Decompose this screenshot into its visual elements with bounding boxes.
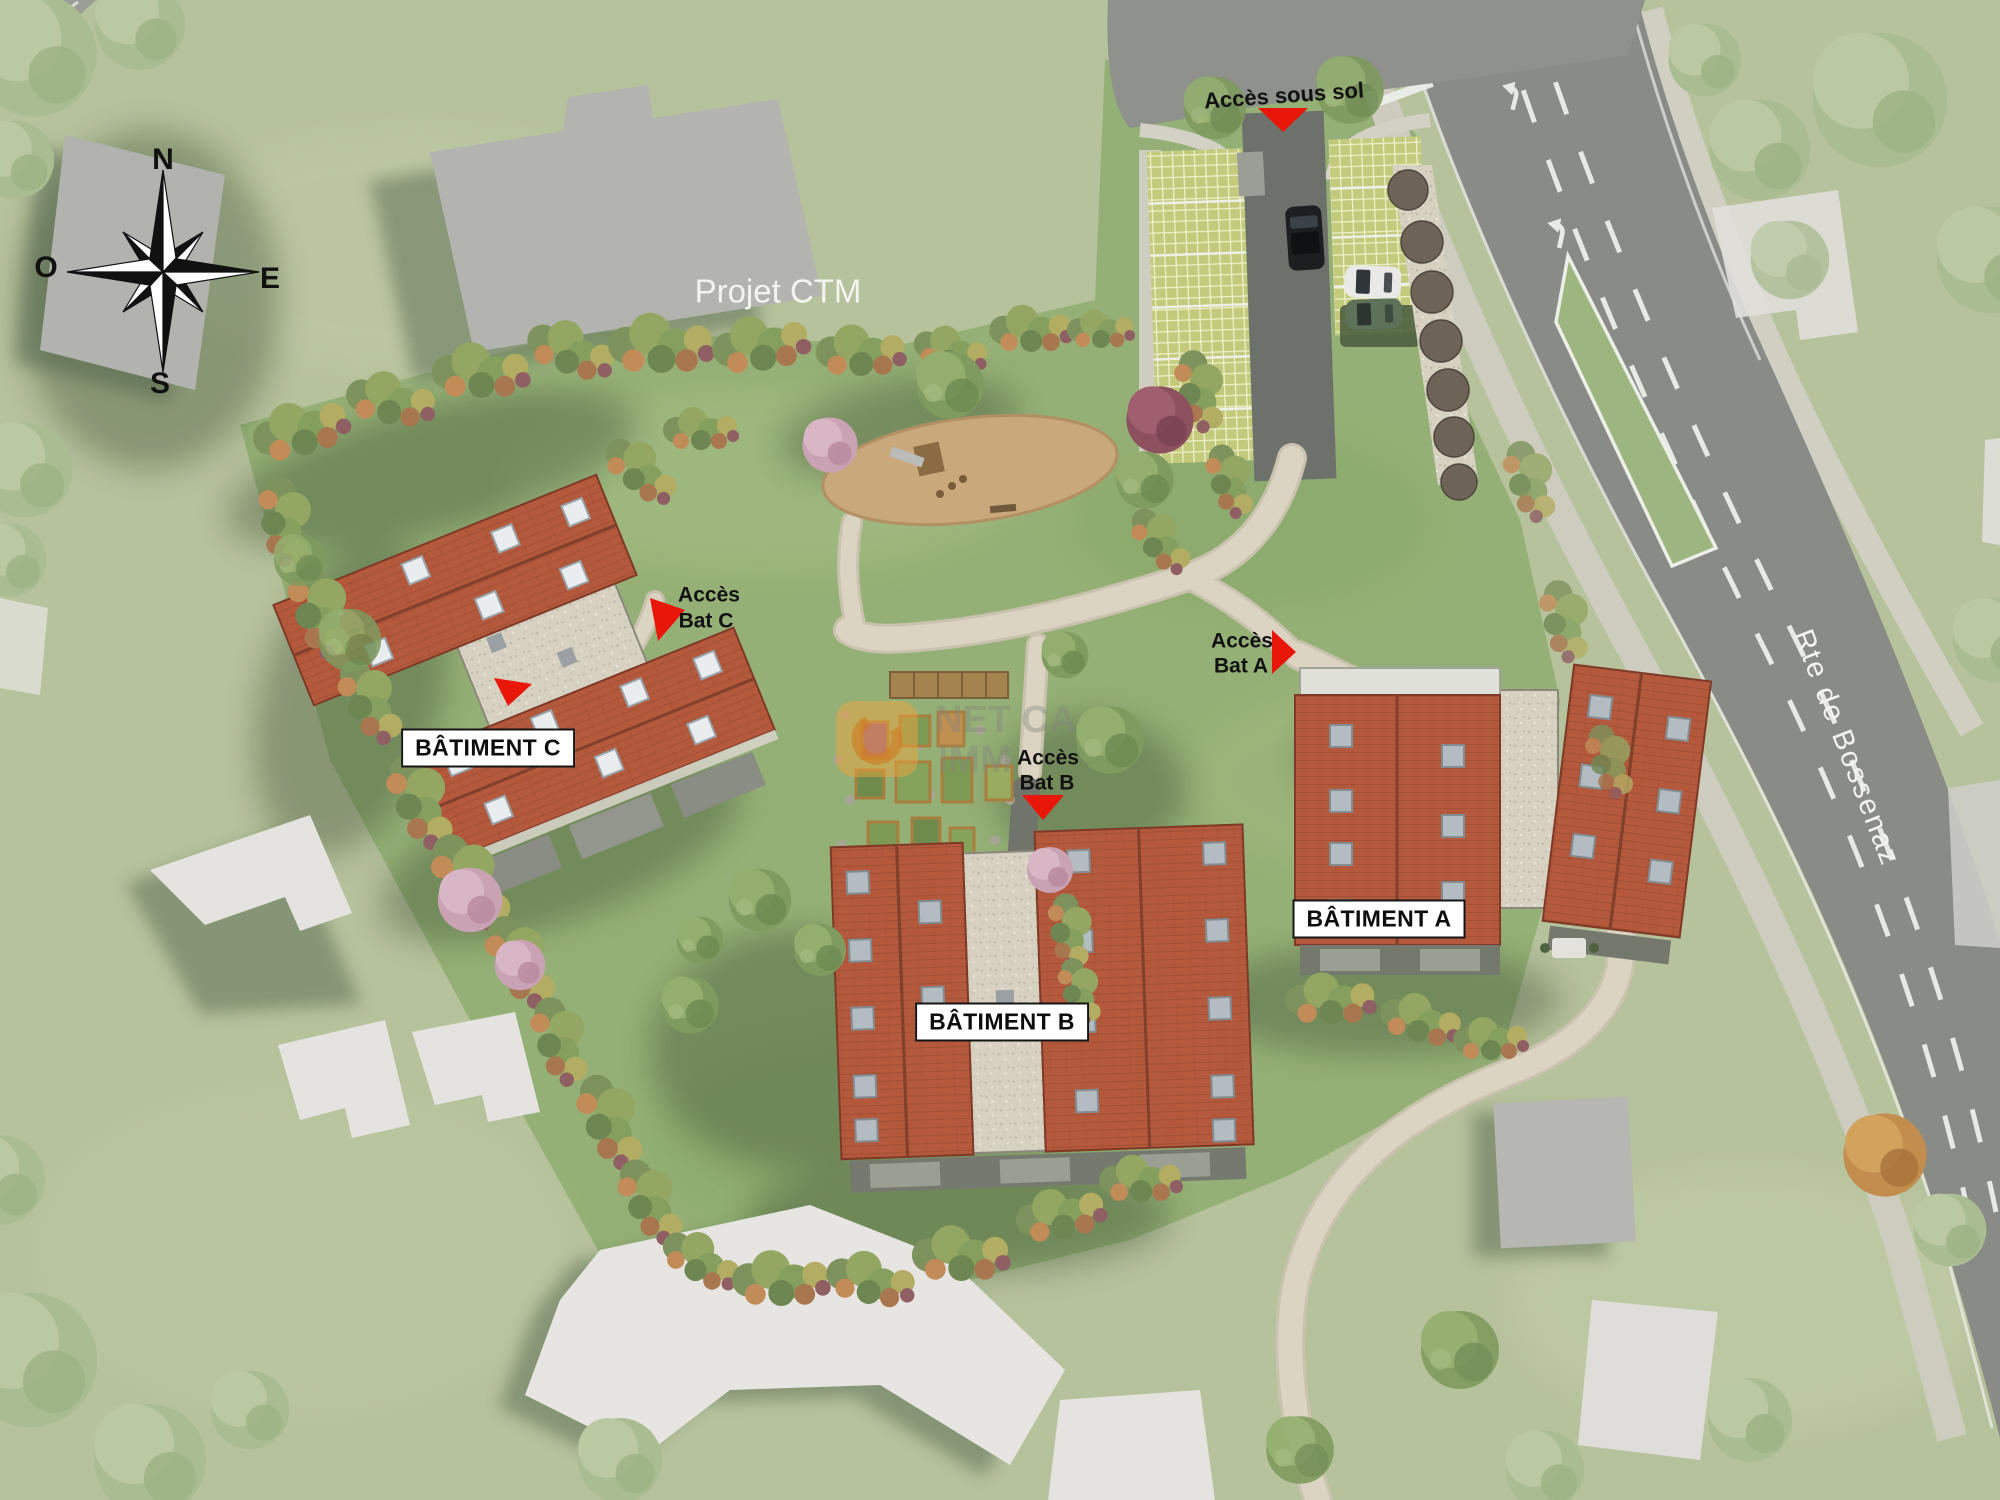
acces-bat-a-label-line1: Accès bbox=[1211, 631, 1273, 652]
compass-south-label: S bbox=[150, 369, 170, 399]
acces-bat-b-label-line1: Accès bbox=[1017, 748, 1079, 769]
gray-building-bottomright bbox=[1493, 1097, 1635, 1249]
acces-bat-c-label-line1: Accès bbox=[678, 585, 740, 606]
car-black bbox=[1285, 205, 1325, 271]
watermark-text-2: IMM bbox=[938, 739, 1012, 781]
batiment-a-label: BÂTIMENT A bbox=[1293, 900, 1466, 939]
acces-bat-c-label-line2: Bat C bbox=[679, 611, 734, 632]
batiment-c-label: BÂTIMENT C bbox=[401, 729, 575, 768]
projet-ctm-label: Projet CTM bbox=[695, 275, 862, 308]
car-white bbox=[1344, 265, 1401, 299]
car-green bbox=[1345, 298, 1402, 330]
acces-bat-a-label-line2: Bat A bbox=[1214, 656, 1268, 677]
compass-east-label: E bbox=[260, 264, 280, 294]
site-plan: NET CA IMM N O E S Projet CTM Accès sous… bbox=[0, 0, 2000, 1500]
compass-north-label: N bbox=[152, 145, 174, 175]
site-plan-graphic: NET CA IMM bbox=[0, 0, 2000, 1500]
watermark-text-1: NET CA bbox=[935, 699, 1076, 741]
batiment-b-label: BÂTIMENT B bbox=[915, 1003, 1089, 1042]
compass-west-label: O bbox=[34, 253, 57, 283]
acces-bat-b-label-line2: Bat B bbox=[1020, 773, 1075, 794]
